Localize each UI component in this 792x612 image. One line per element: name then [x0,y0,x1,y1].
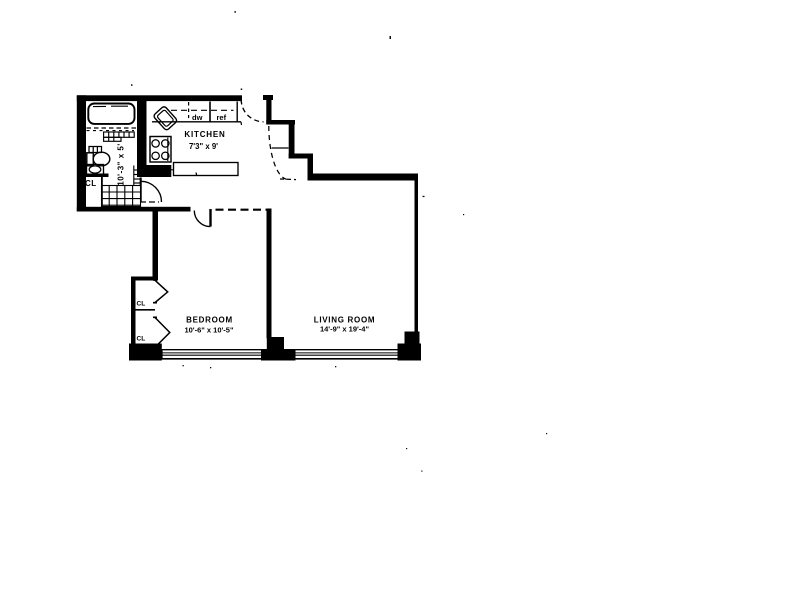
svg-text:CL: CL [137,336,146,343]
svg-text:14'-9" x 19'-4": 14'-9" x 19'-4" [320,325,369,334]
svg-text:ref: ref [217,113,227,122]
svg-text:BEDROOM: BEDROOM [186,316,233,325]
svg-text:10'-3" x 5': 10'-3" x 5' [117,143,126,185]
svg-text:LIVING ROOM: LIVING ROOM [314,316,375,325]
svg-text:KITCHEN: KITCHEN [184,130,225,139]
svg-text:7'3" x 9': 7'3" x 9' [189,142,218,151]
svg-text:CL: CL [137,301,146,308]
svg-text:10'-6" x 10'-5": 10'-6" x 10'-5" [184,326,233,335]
svg-text:dw: dw [192,113,203,122]
svg-text:CL: CL [85,179,97,188]
